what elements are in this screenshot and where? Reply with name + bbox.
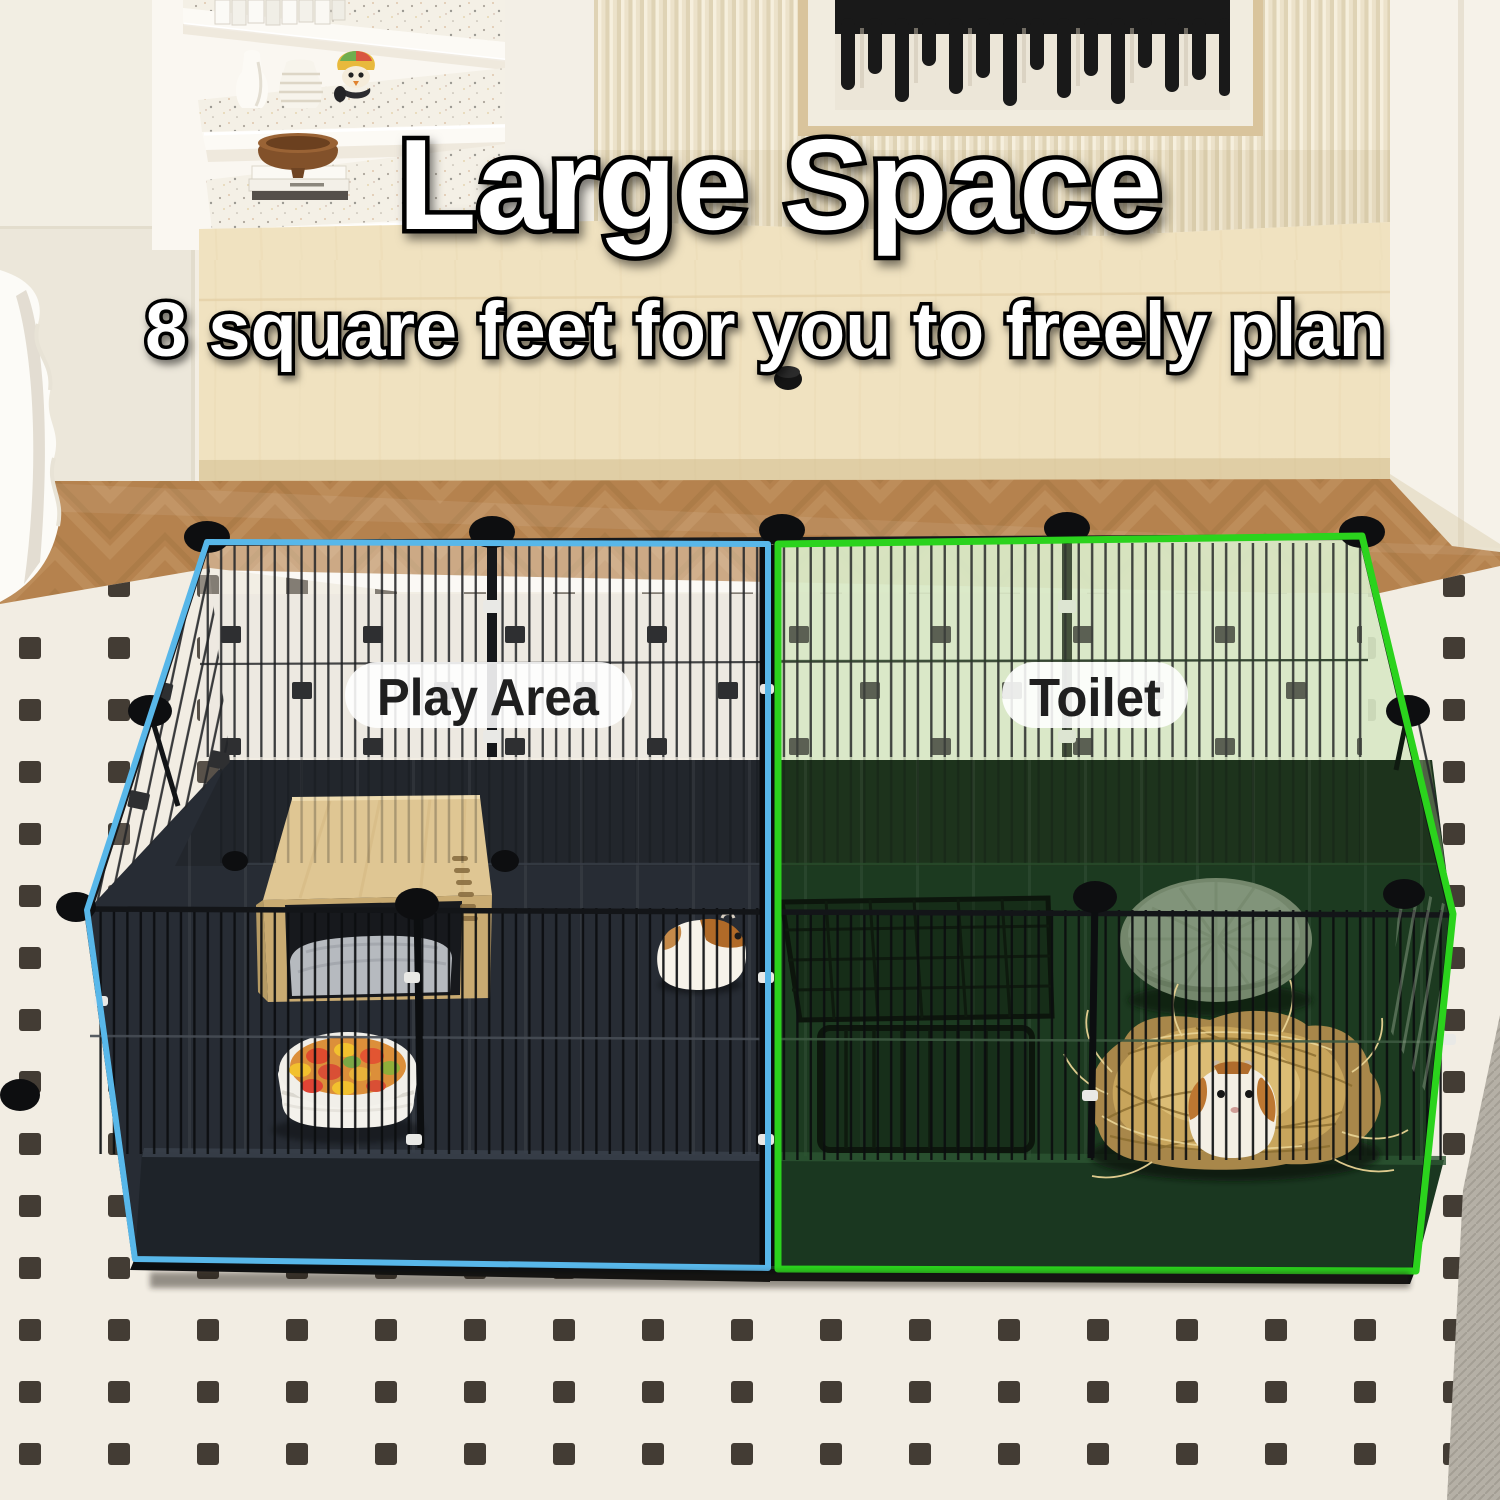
svg-text:Large Space: Large Space [398,113,1162,257]
svg-text:Play Area: Play Area [377,669,600,727]
svg-text:Toilet: Toilet [1029,668,1161,728]
svg-text:8 square feet for you to freel: 8 square feet for you to freely plan [145,287,1385,373]
